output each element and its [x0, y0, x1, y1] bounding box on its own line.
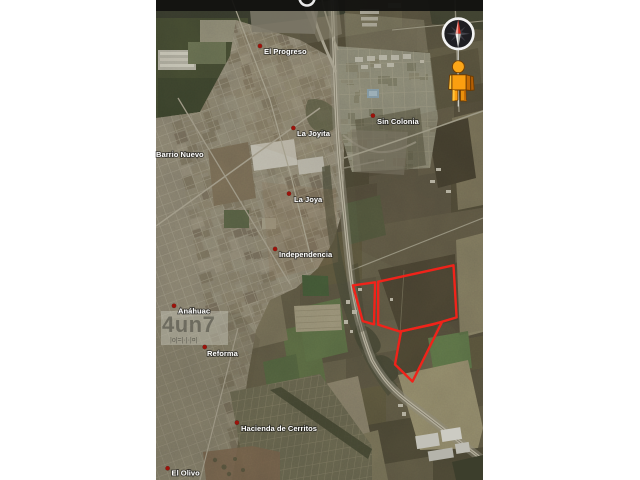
svg-text:El Progreso: El Progreso	[264, 47, 307, 56]
svg-text:|o|=|·|·|¤|: |o|=|·|·|¤|	[170, 337, 198, 344]
svg-text:Hacienda de Cerritos: Hacienda de Cerritos	[241, 424, 317, 433]
svg-text:Reforma: Reforma	[207, 349, 239, 358]
svg-text:La Joyita: La Joyita	[297, 129, 331, 138]
svg-text:El Olivo: El Olivo	[172, 469, 201, 478]
svg-text:4un7: 4un7	[162, 312, 215, 337]
svg-text:Barrio Nuevo: Barrio Nuevo	[156, 150, 204, 159]
svg-text:Independencia: Independencia	[279, 250, 333, 259]
svg-text:Sin Colonia: Sin Colonia	[377, 117, 420, 126]
svg-text:Anáhuac: Anáhuac	[178, 307, 210, 316]
svg-text:La Joya: La Joya	[294, 195, 323, 204]
